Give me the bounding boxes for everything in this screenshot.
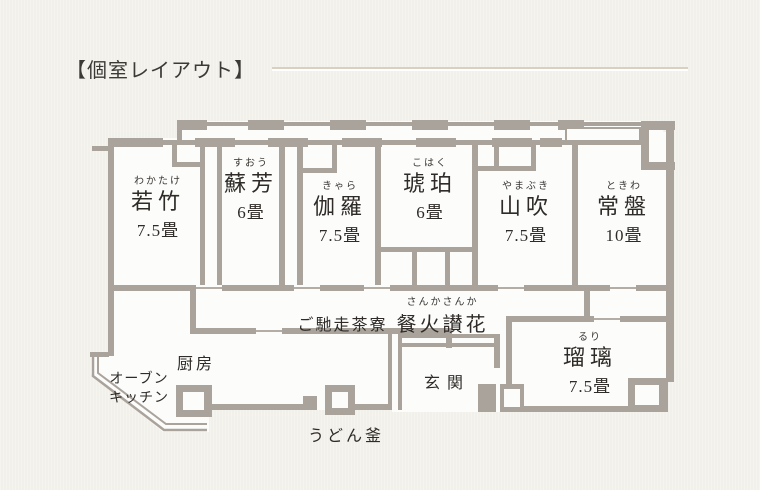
- room-name: 瑠璃: [563, 345, 617, 370]
- room-label-suou: すおう 蘇芳 6畳: [224, 158, 278, 222]
- room-name: 伽羅: [313, 194, 367, 219]
- room-name: 琥珀: [403, 171, 457, 196]
- page: 【個室レイアウト】: [0, 0, 760, 490]
- restaurant-furigana: さんかさんか: [407, 293, 479, 308]
- room-label-ruri: るり 瑠璃 7.5畳: [563, 332, 617, 396]
- restaurant-name-block: さんかさんか 餐火讃花: [397, 293, 489, 337]
- room-furigana: きゃら: [313, 181, 367, 193]
- room-name: 常盤: [597, 194, 651, 219]
- restaurant-label: ご馳走茶寮 さんかさんか 餐火讃花: [297, 293, 488, 337]
- room-furigana: やまぶき: [499, 181, 553, 193]
- udon-pot-label: うどん釜: [308, 422, 384, 446]
- room-size: 7.5畳: [313, 226, 367, 246]
- oven-kitchen-line2: キッチン: [109, 390, 169, 409]
- entrance-label: 玄関: [424, 369, 470, 393]
- room-furigana: わかたけ: [131, 176, 185, 188]
- room-label-tokiwa: ときわ 常盤 10畳: [597, 181, 651, 245]
- room-label-wakatake: わかたけ 若竹 7.5畳: [131, 176, 185, 240]
- room-size: 7.5畳: [131, 221, 185, 241]
- room-size: 7.5畳: [499, 226, 553, 246]
- room-furigana: こはく: [403, 158, 457, 170]
- room-label-yamabuki: やまぶき 山吹 7.5畳: [499, 181, 553, 245]
- room-size: 6畳: [224, 203, 278, 223]
- room-name: 蘇芳: [224, 171, 278, 196]
- room-size: 10畳: [597, 226, 651, 246]
- floor-plan: わかたけ 若竹 7.5畳 すおう 蘇芳 6畳 きゃら 伽羅 7.5畳 こはく 琥…: [0, 0, 760, 490]
- oven-kitchen-label: オーブン キッチン: [109, 371, 169, 409]
- oven-kitchen-line1: オーブン: [109, 371, 169, 390]
- room-name: 山吹: [499, 194, 553, 219]
- room-furigana: るり: [563, 332, 617, 344]
- room-size: 6畳: [403, 203, 457, 223]
- room-label-kohaku: こはく 琥珀 6畳: [403, 158, 457, 222]
- window: [566, 128, 640, 141]
- room-size: 7.5畳: [563, 377, 617, 397]
- kitchen-label: 厨房: [177, 350, 215, 374]
- room-name: 若竹: [131, 189, 185, 214]
- restaurant-prefix: ご馳走茶寮: [297, 311, 387, 337]
- room-furigana: ときわ: [597, 181, 651, 193]
- restaurant-name: 餐火讃花: [397, 308, 489, 337]
- room-furigana: すおう: [224, 158, 278, 170]
- room-label-kyara: きゃら 伽羅 7.5畳: [313, 181, 367, 245]
